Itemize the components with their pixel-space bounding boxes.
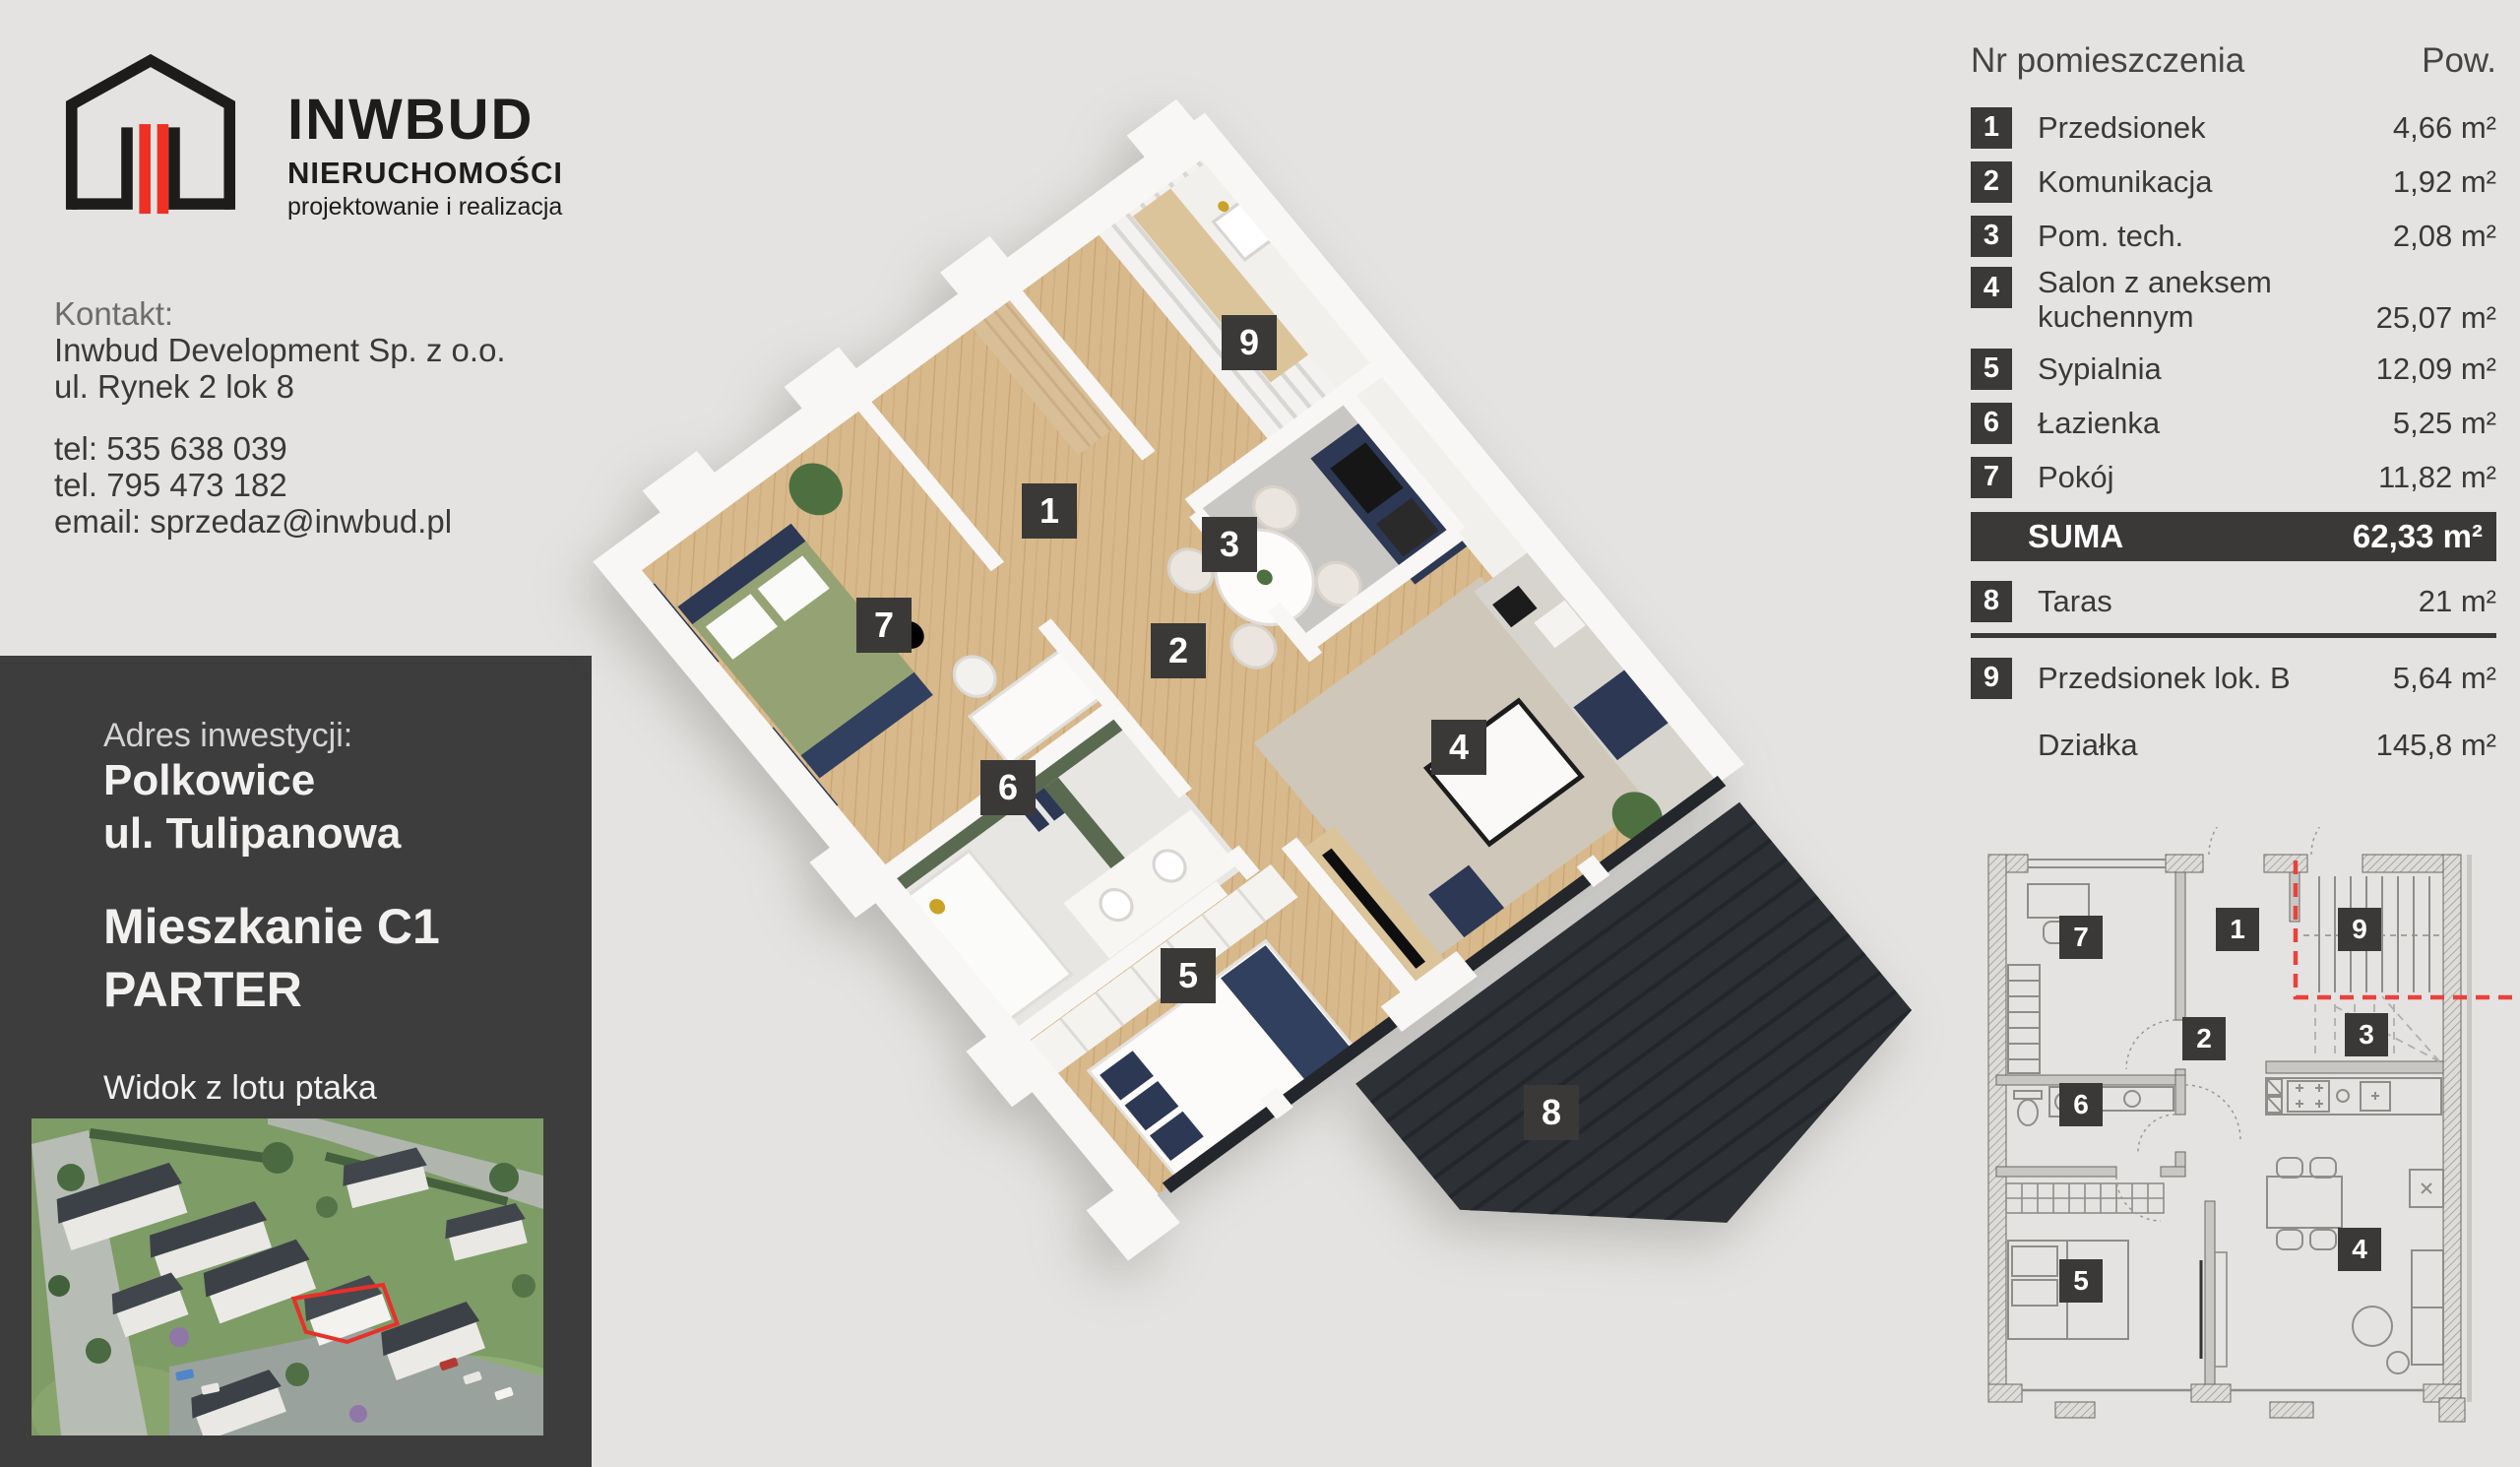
room-name: Salon z aneksem kuchennym xyxy=(2038,265,2376,334)
room-label-3d-5: 5 xyxy=(1161,948,1216,1003)
room-area: 25,07 m² xyxy=(2376,300,2496,342)
room-name: Sypialnia xyxy=(2038,351,2376,386)
table-row: 7 Pokój 11,82 m² xyxy=(1971,450,2496,504)
room-label-2d-2: 2 xyxy=(2182,1017,2226,1060)
brand-title: INWBUD xyxy=(287,87,534,153)
contact-block: Kontakt: Inwbud Development Sp. z o.o. u… xyxy=(54,295,566,540)
room-label-2d-1: 1 xyxy=(2216,908,2259,951)
room-label-2d-7: 7 xyxy=(2059,916,2103,959)
inwbud-house-logo-icon xyxy=(61,47,240,221)
area-table-header: Nr pomieszczenia Pow. xyxy=(1971,41,2496,91)
investment-label: Adres inwestycji: xyxy=(103,717,352,755)
room-label-2d-3: 3 xyxy=(2345,1013,2388,1056)
room-area: 2,08 m² xyxy=(2393,219,2496,254)
table-row: 2 Komunikacja 1,92 m² xyxy=(1971,155,2496,209)
suma-bar: SUMA 62,33 m² xyxy=(1971,512,2496,561)
contact-company: Inwbud Development Sp. z o.o. xyxy=(54,332,566,368)
room-area: 5,64 m² xyxy=(2393,661,2496,696)
room-number-badge: 8 xyxy=(1971,581,2012,622)
floor-plan-3d-illustration xyxy=(551,98,1969,1319)
investment-level: PARTER xyxy=(103,961,302,1018)
room-area: 1,92 m² xyxy=(2393,164,2496,200)
room-label-3d-8: 8 xyxy=(1524,1085,1579,1140)
room-label-3d-6: 6 xyxy=(980,760,1036,815)
room-number-badge: 9 xyxy=(1971,658,2012,699)
room-area: 12,09 m² xyxy=(2376,351,2496,387)
room-area: 11,82 m² xyxy=(2378,460,2496,495)
room-area: 4,66 m² xyxy=(2393,110,2496,146)
room-name: Pokój xyxy=(2038,460,2378,494)
room-number-badge: 4 xyxy=(1971,267,2012,308)
flyer-page: { "brand": { "title": "INWBUD", "subtitl… xyxy=(0,0,2520,1467)
table-divider xyxy=(1971,633,2496,638)
room-label-2d-6: 6 xyxy=(2059,1083,2103,1126)
brand-tagline: projektowanie i realizacja xyxy=(287,193,562,222)
table-row-lok-b: 9 Przedsionek lok. B 5,64 m² xyxy=(1971,651,2496,705)
room-label-3d-9: 9 xyxy=(1222,315,1277,370)
room-label-3d-7: 7 xyxy=(856,598,912,653)
room-area: 21 m² xyxy=(2419,584,2496,619)
contact-address: ul. Rynek 2 lok 8 xyxy=(54,368,566,405)
brand-subtitle: NIERUCHOMOŚCI xyxy=(287,156,563,191)
room-number-badge: 1 xyxy=(1971,107,2012,149)
room-label-2d-5: 5 xyxy=(2059,1259,2103,1303)
room-name: Pom. tech. xyxy=(2038,219,2393,253)
room-name: Łazienka xyxy=(2038,406,2393,440)
room-label-2d-9: 9 xyxy=(2338,908,2381,951)
area-table: Nr pomieszczenia Pow. 1 Przedsionek 4,66… xyxy=(1971,41,2496,772)
room-label-3d-1: 1 xyxy=(1022,483,1077,539)
table-row-taras: 8 Taras 21 m² xyxy=(1971,574,2496,628)
room-label-3d-4: 4 xyxy=(1431,720,1486,775)
table-row: 4 Salon z aneksem kuchennym 25,07 m² xyxy=(1971,263,2496,342)
room-name: Taras xyxy=(2038,584,2419,618)
room-name: Przedsionek xyxy=(2038,110,2393,145)
room-area: 145,8 m² xyxy=(2376,728,2496,763)
table-row: 6 Łazienka 5,25 m² xyxy=(1971,396,2496,450)
room-number-badge: 5 xyxy=(1971,349,2012,390)
aerial-view-image xyxy=(31,1118,543,1435)
room-number-badge: 7 xyxy=(1971,457,2012,498)
contact-phone-1: tel: 535 638 039 xyxy=(54,430,566,467)
investment-street: ul. Tulipanowa xyxy=(103,809,401,859)
table-row: 1 Przedsionek 4,66 m² xyxy=(1971,100,2496,155)
investment-unit: Mieszkanie C1 xyxy=(103,898,440,955)
contact-phone-2: tel. 795 473 182 xyxy=(54,467,566,503)
room-number-badge: 6 xyxy=(1971,403,2012,444)
contact-label: Kontakt: xyxy=(54,295,566,332)
room-label-3d-2: 2 xyxy=(1151,623,1206,678)
room-label-3d-3: 3 xyxy=(1202,517,1257,572)
col-room-number: Nr pomieszczenia xyxy=(1971,41,2244,81)
room-number-badge: 2 xyxy=(1971,161,2012,203)
table-row-dzialka: Działka 145,8 m² xyxy=(1971,718,2496,772)
suma-area: 62,33 m² xyxy=(2353,518,2483,555)
aerial-caption: Widok z lotu ptaka xyxy=(103,1069,377,1108)
contact-email: email: sprzedaz@inwbud.pl xyxy=(54,503,566,540)
suma-label: SUMA xyxy=(2028,518,2123,555)
room-name: Działka xyxy=(2038,728,2376,762)
investment-city: Polkowice xyxy=(103,756,315,805)
table-row: 3 Pom. tech. 2,08 m² xyxy=(1971,209,2496,263)
room-area: 5,25 m² xyxy=(2393,406,2496,441)
room-name: Przedsionek lok. B xyxy=(2038,661,2393,695)
room-number-badge: 3 xyxy=(1971,216,2012,257)
room-name: Komunikacja xyxy=(2038,164,2393,199)
col-area: Pow. xyxy=(2422,41,2496,81)
room-label-2d-4: 4 xyxy=(2338,1228,2381,1271)
investment-panel: Adres inwestycji: Polkowice ul. Tulipano… xyxy=(0,656,592,1467)
table-row: 5 Sypialnia 12,09 m² xyxy=(1971,342,2496,396)
